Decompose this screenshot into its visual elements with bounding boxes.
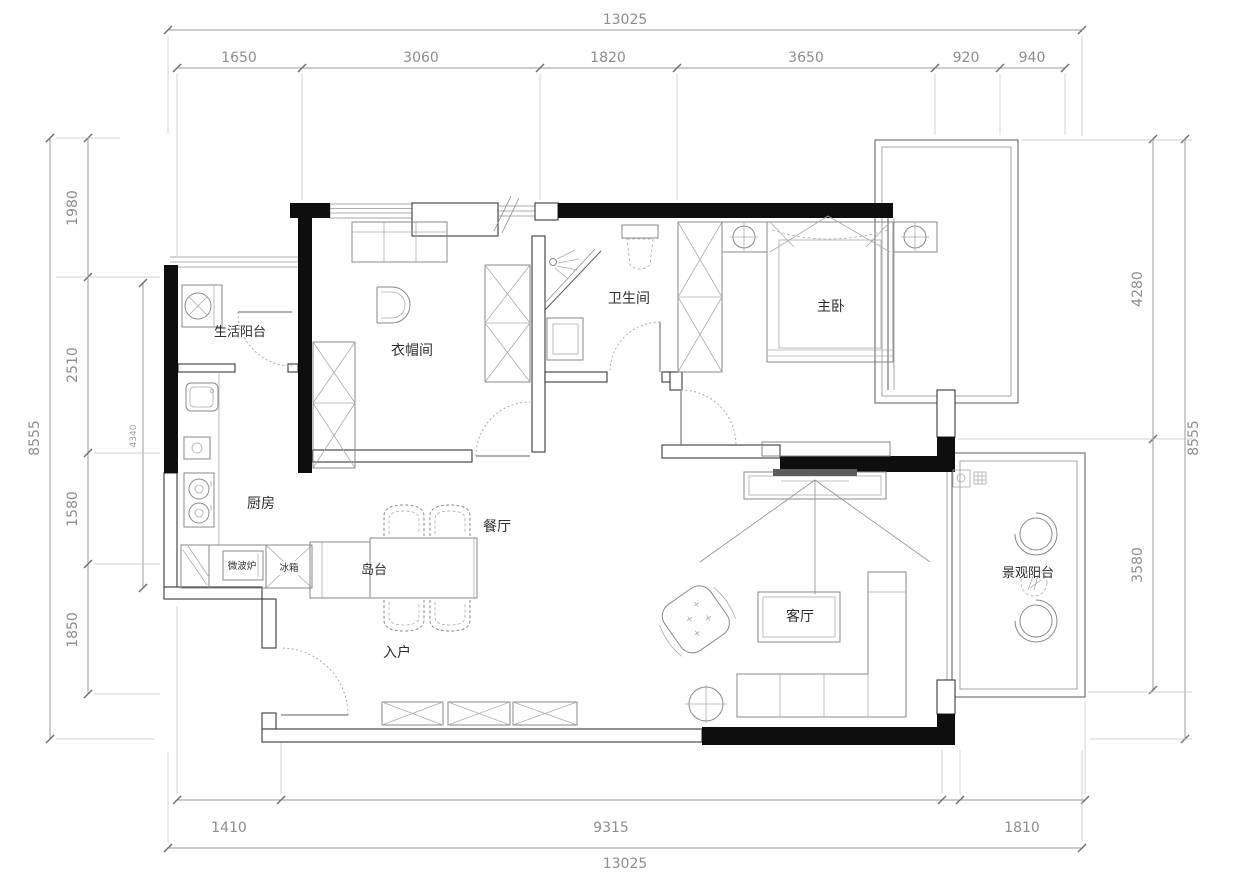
window-niche: [412, 203, 498, 236]
label-living: 客厅: [786, 608, 814, 625]
room-labels: 生活阳台 衣帽间 卫生间 主卧 厨房 餐厅 岛台 入户 客厅 景观阳台 微波炉 …: [214, 291, 1054, 661]
dimension-right: 4280 3580 8555: [958, 135, 1202, 743]
dim-bottom-seg-0: 1410: [211, 820, 247, 836]
dim-top-seg-4: 920: [953, 50, 980, 66]
label-dining: 餐厅: [483, 519, 511, 535]
dim-top-seg-1: 3060: [403, 50, 439, 66]
dim-top-seg-2: 1820: [590, 50, 626, 66]
nightstand-right: [893, 222, 937, 252]
dim-top-seg-0: 1650: [221, 50, 257, 66]
shower: [545, 249, 601, 310]
shoe-cabinets: [382, 702, 577, 725]
label-fridge: 冰箱: [279, 562, 298, 574]
dim-bottom-seg-2: 1810: [1004, 820, 1040, 836]
toilet: [622, 225, 658, 269]
label-kitchen: 厨房: [247, 496, 275, 512]
balcony-chair-2: [1015, 600, 1057, 642]
dim-right-total: 8555: [1186, 420, 1202, 456]
kitchen-sink: [186, 383, 218, 411]
dim-right-seg-0: 4280: [1130, 271, 1146, 307]
label-view-balcony: 景观阳台: [1002, 566, 1054, 581]
bay-window: [875, 140, 1018, 403]
washbasin: [547, 318, 583, 360]
dresser: [762, 442, 890, 456]
dim-left-total2: 8555: [27, 420, 43, 456]
stove: [184, 473, 214, 527]
label-island: 岛台: [361, 562, 387, 578]
dimension-left: 8555 1980 2510 1580 1850 4340: [27, 134, 160, 743]
dim-right-seg-1: 3580: [1130, 547, 1146, 583]
floor-plan-page: 13025 1650 3060 1820 3650 920 940 8555: [0, 0, 1253, 877]
bedroom-wardrobe: [678, 222, 722, 372]
washing-machine: [182, 285, 222, 327]
floor-plan-canvas: 13025 1650 3060 1820 3650 920 940 8555: [0, 0, 1253, 877]
dim-left-seg-1: 2510: [65, 347, 81, 383]
cloakroom-door: [476, 402, 530, 456]
dim-left-seg-0: 1980: [65, 190, 81, 226]
label-service-balcony: 生活阳台: [214, 325, 266, 340]
dim-left-seg-2: 1580: [65, 491, 81, 527]
cloakroom-chair: [377, 287, 410, 323]
dim-top-total: 13025: [603, 12, 648, 28]
bedroom-door: [681, 390, 736, 445]
dim-left-seg-3: 1850: [65, 612, 81, 648]
label-master-bedroom: 主卧: [817, 299, 845, 315]
armchair: [651, 576, 741, 663]
bed: [767, 216, 893, 362]
side-table: [685, 685, 727, 723]
bathroom-door: [610, 322, 660, 372]
label-entry: 入户: [383, 644, 411, 661]
dim-bottom-seg-1: 9315: [593, 820, 629, 836]
nightstand-left: [722, 222, 767, 252]
tv-console: [700, 469, 930, 594]
dining-chairs: [384, 505, 470, 631]
label-cloakroom: 衣帽间: [391, 343, 433, 359]
dim-bottom-total: 13025: [603, 856, 648, 872]
entry-door: [281, 648, 348, 715]
dim-top-seg-5: 940: [1019, 50, 1046, 66]
dim-left-inner: 4340: [129, 424, 139, 447]
sofa: [737, 572, 906, 717]
tv: [773, 469, 857, 476]
label-microwave: 微波炉: [228, 560, 257, 572]
label-bathroom: 卫生间: [608, 291, 650, 307]
kitchen-counter: [181, 372, 312, 588]
balcony-fixtures: [953, 470, 986, 487]
balcony-chair-1: [1015, 513, 1057, 555]
dim-top-seg-3: 3650: [788, 50, 824, 66]
